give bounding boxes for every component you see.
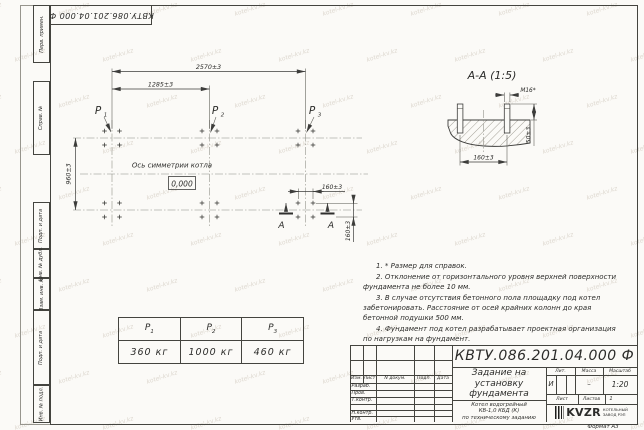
dim-section-height: 50±3 [526,127,533,144]
dim-bolt-horizontal: 160±3 [322,184,342,191]
note-3: 3. В случае отсутствия бетонного пола пл… [363,294,623,324]
sign-row-razrab: Разраб. [352,383,377,390]
load-label-p3-sub: 3 [318,113,322,119]
technical-notes: 1. * Размер для справок. 2. Отклонение о… [363,262,623,346]
mass-header: Масса [575,368,603,375]
thread-label: М16* [520,88,535,94]
lit-value: И [546,375,556,393]
section-view: А-А (1:5) М16* 50±3 160±3 [448,69,537,166]
section-mark-a1: А [277,221,284,231]
dim-half: 1285±3 [148,82,173,89]
load-value-p3: 460 кг [242,341,304,364]
load-table: P1 P2 P3 360 кг 1000 кг 460 кг [118,317,304,364]
note-1: 1. * Размер для справок. [363,262,623,272]
logo-stripes-icon [555,406,564,419]
load-table-header-row: P1 P2 P3 [119,318,304,341]
scale-header: Масштаб [603,368,637,375]
sign-row-tkontr: Т.контр. [352,397,377,404]
note-2: 2. Отклонение от горизонтального уровня … [363,273,623,293]
section-title: А-А (1:5) [467,69,517,82]
sign-row-utv: Утв. [352,416,377,422]
lit-header: Лит. [546,368,575,375]
load-header-p1: P1 [119,318,181,341]
mass-value: – [575,375,603,393]
load-label-p1-sub: 1 [104,113,108,119]
format-label: Формат А3 [578,424,628,430]
rev-header-izm: Изм. [350,375,363,383]
company-logo: KVZR КОТЕЛЬНЫЙ ЗАВОД РЭП [546,404,637,423]
load-header-p3: P3 [242,318,304,341]
rev-header-podp: Подп. [414,375,434,383]
dim-section-width: 160±3 [473,154,493,161]
logo-caption: КОТЕЛЬНЫЙ ЗАВОД РЭП [603,408,628,417]
drawing-subtitle: Котел водогрейный КВ-1,0 КБД (К) по техн… [452,402,546,421]
dim-depth: 960±3 [66,163,73,184]
doc-number: КВТУ.086.201.04.000 Ф [452,345,637,367]
load-header-p2: P2 [180,318,241,341]
load-label-p2: P [212,105,219,117]
drawing-title: Задание на установку фундамента [452,368,546,400]
sheets-label: Листов [578,395,605,404]
rev-header-data: Дата [434,375,452,383]
sign-row-prov: Пров. [352,390,377,397]
load-label-p2-sub: 2 [221,113,225,119]
load-label-p3: P [309,105,316,117]
rev-header-ndokum: N докум. [376,375,414,383]
load-table-value-row: 360 кг 1000 кг 460 кг [119,341,304,364]
sheets-value: 1 [605,395,617,404]
load-value-p1: 360 кг [119,341,181,364]
dim-overall: 2570±3 [196,64,221,71]
plan-view: 2570±3 1285±3 960±3 P 1 P 2 P 3 Ось симм… [66,64,369,242]
section-mark-a2: А [327,221,334,231]
logo-text: KVZR [566,406,601,419]
load-label-p1: P [95,105,102,117]
level-mark: 0,000 [171,180,193,189]
dim-bolt-vertical: 160±3 [345,221,352,241]
load-value-p2: 1000 кг [180,341,241,364]
note-4: 4. Фундамент под котел разрабатывает про… [363,325,623,345]
sheet-label: Лист [546,395,578,404]
scale-value: 1:20 [603,375,637,393]
axis-of-symmetry-label: Ось симметрии котла [132,162,212,170]
rev-header-list: Лист [363,375,376,383]
